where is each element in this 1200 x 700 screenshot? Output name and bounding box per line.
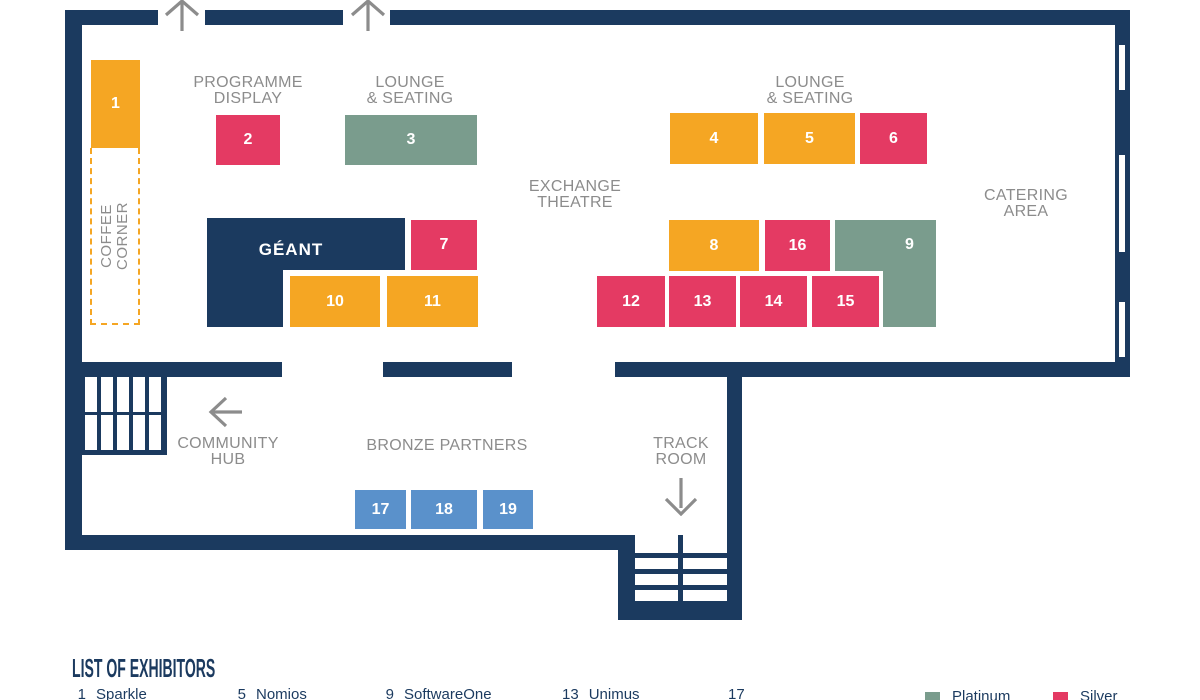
stair-opening xyxy=(683,535,727,542)
geant-stand: GÉANT xyxy=(207,218,405,270)
booth-1: 1 xyxy=(91,60,140,148)
booth-6: 6 xyxy=(860,113,927,164)
geant-label: GÉANT xyxy=(207,218,405,270)
booth-number: 1 xyxy=(111,95,120,113)
legend-swatch-icon xyxy=(925,692,940,700)
booth-18: 18 xyxy=(411,490,477,529)
booth-number: 16 xyxy=(789,237,807,255)
booth-2: 2 xyxy=(216,115,280,165)
geant-stand-extension xyxy=(207,270,283,327)
exhibitor-number: 13 xyxy=(562,687,579,700)
booth-number: 11 xyxy=(424,293,441,311)
wall-mid-center xyxy=(383,362,512,377)
legend-label: Silver xyxy=(1080,689,1118,700)
stair-tread xyxy=(149,377,161,412)
stair-tread xyxy=(117,377,129,412)
legend-label: Platinum xyxy=(952,689,1010,700)
lounge-seating-left-label: LOUNGE& SEATING xyxy=(367,75,454,107)
community-hub-left-arrow-icon xyxy=(204,394,244,430)
booth-number: 5 xyxy=(805,130,814,148)
exhibitor-number: 17 xyxy=(728,687,745,700)
booth-7: 7 xyxy=(411,220,477,270)
booth-15: 15 xyxy=(812,276,879,327)
legend-swatch-icon xyxy=(1053,692,1068,700)
booth-9: 9 xyxy=(883,220,936,327)
window-slit xyxy=(1119,155,1125,252)
coffee-corner-line1: COFFEE xyxy=(98,204,115,268)
booth-number: 17 xyxy=(372,501,390,519)
community-hub-label: COMMUNITYHUB xyxy=(177,436,278,468)
lounge-seating-right-label: LOUNGE& SEATING xyxy=(767,75,854,107)
wall-left xyxy=(65,10,82,550)
booth-3: 3 xyxy=(345,115,477,165)
exhibitor-name: Unimus xyxy=(589,687,640,700)
stair-tread xyxy=(149,415,161,450)
floor-plan-page: COFFEECORNER GÉANT PROGRAMMEDISPLAY LOUN… xyxy=(0,0,1200,700)
coffee-corner-area: COFFEECORNER xyxy=(90,148,140,325)
booth-number: 3 xyxy=(407,131,416,149)
booth-13: 13 xyxy=(669,276,736,327)
exhibitor-name: SoftwareOne xyxy=(404,687,492,700)
booth-number: 18 xyxy=(435,501,453,519)
catering-area-label: CATERINGAREA xyxy=(984,188,1068,220)
exhibitor-number: 5 xyxy=(232,687,246,700)
stair-tread xyxy=(635,574,678,585)
booth-number: 7 xyxy=(440,236,449,254)
coffee-corner-line2: CORNER xyxy=(114,201,131,269)
track-room-label: TRACKROOM xyxy=(653,436,709,468)
booth-5: 5 xyxy=(764,113,855,164)
stair-tread xyxy=(683,590,727,601)
stair-tread xyxy=(85,377,97,412)
booth-11: 11 xyxy=(387,276,478,327)
entrance-up-arrow-icon xyxy=(348,0,388,32)
legend-item-platinum: Platinum xyxy=(925,689,1010,700)
booth-17: 17 xyxy=(355,490,406,529)
stair-tread xyxy=(635,542,678,553)
stair-tread xyxy=(133,415,145,450)
window-slit xyxy=(1119,302,1125,357)
exhibitor-item: 1Sparkle xyxy=(72,687,147,700)
booth-number: 2 xyxy=(244,131,253,149)
coffee-corner-label: COFFEECORNER xyxy=(99,201,131,269)
exhibitor-name: Sparkle xyxy=(96,687,147,700)
booth-number: 19 xyxy=(499,501,517,519)
booth-14: 14 xyxy=(740,276,807,327)
wall-mid-right xyxy=(615,362,1130,377)
exchange-theatre-label: EXCHANGETHEATRE xyxy=(529,179,621,211)
stair-tread xyxy=(635,590,678,601)
exhibitor-item: 5Nomios xyxy=(232,687,307,700)
exhibitor-list-title: LIST OF EXHIBITORS xyxy=(72,655,215,681)
exhibitor-number: 1 xyxy=(72,687,86,700)
programme-display-label: PROGRAMMEDISPLAY xyxy=(193,75,302,107)
wall-top-middle xyxy=(205,10,343,25)
booth-number: 9 xyxy=(905,236,914,254)
booth-10: 10 xyxy=(290,276,380,327)
exhibitor-item: 17 xyxy=(728,687,755,700)
exhibitor-item: 9SoftwareOne xyxy=(380,687,492,700)
stair-tread xyxy=(117,415,129,450)
exhibitor-number: 9 xyxy=(380,687,394,700)
stair-tread xyxy=(683,558,727,569)
booth-4: 4 xyxy=(670,113,758,164)
stair-tread xyxy=(133,377,145,412)
booth-9-extension xyxy=(835,220,883,271)
window-slit xyxy=(1119,45,1125,90)
stair-opening xyxy=(635,535,678,542)
track-room-down-arrow-icon xyxy=(661,476,701,516)
booth-number: 15 xyxy=(837,293,855,311)
entrance-up-arrow-icon xyxy=(162,0,202,32)
stair-tread xyxy=(683,542,727,553)
booth-number: 8 xyxy=(710,237,719,255)
wall-bottom xyxy=(65,535,633,550)
booth-number: 13 xyxy=(694,293,712,311)
booth-number: 10 xyxy=(326,293,344,311)
wall-top-right xyxy=(390,10,1130,25)
booth-number: 4 xyxy=(710,130,719,148)
booth-number: 14 xyxy=(765,293,783,311)
booth-16: 16 xyxy=(765,220,830,271)
booth-8: 8 xyxy=(669,220,759,271)
booth-19: 19 xyxy=(483,490,533,529)
legend-item-silver: Silver xyxy=(1053,689,1118,700)
booth-number: 6 xyxy=(889,130,898,148)
booth-number: 12 xyxy=(622,293,640,311)
stair-tread xyxy=(101,415,113,450)
booth-12: 12 xyxy=(597,276,665,327)
stair-tread xyxy=(635,558,678,569)
stair-tread xyxy=(101,377,113,412)
exhibitor-item: 13Unimus xyxy=(562,687,640,700)
bronze-partners-label: BRONZE PARTNERS xyxy=(366,438,527,454)
stair-tread xyxy=(85,415,97,450)
stair-tread xyxy=(683,574,727,585)
exhibitor-name: Nomios xyxy=(256,687,307,700)
